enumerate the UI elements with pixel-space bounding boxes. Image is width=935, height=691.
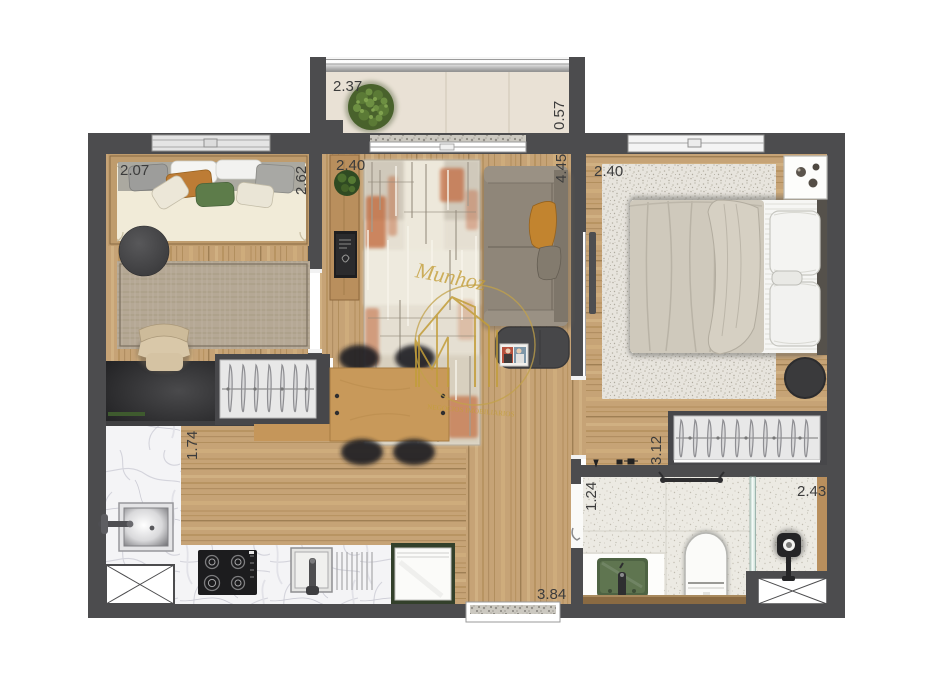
svg-text:2.43: 2.43	[797, 483, 826, 500]
svg-text:2.37: 2.37	[333, 78, 362, 95]
svg-text:3.12: 3.12	[648, 436, 665, 465]
svg-text:2.40: 2.40	[336, 157, 365, 174]
svg-text:4.45: 4.45	[553, 154, 570, 183]
svg-text:3.84: 3.84	[537, 586, 566, 603]
svg-text:0.57: 0.57	[551, 101, 568, 130]
svg-text:1.74: 1.74	[184, 431, 201, 460]
svg-text:2.07: 2.07	[120, 162, 149, 179]
svg-text:2.62: 2.62	[293, 166, 310, 195]
svg-text:1.24: 1.24	[583, 482, 600, 511]
svg-text:2.40: 2.40	[594, 163, 623, 180]
